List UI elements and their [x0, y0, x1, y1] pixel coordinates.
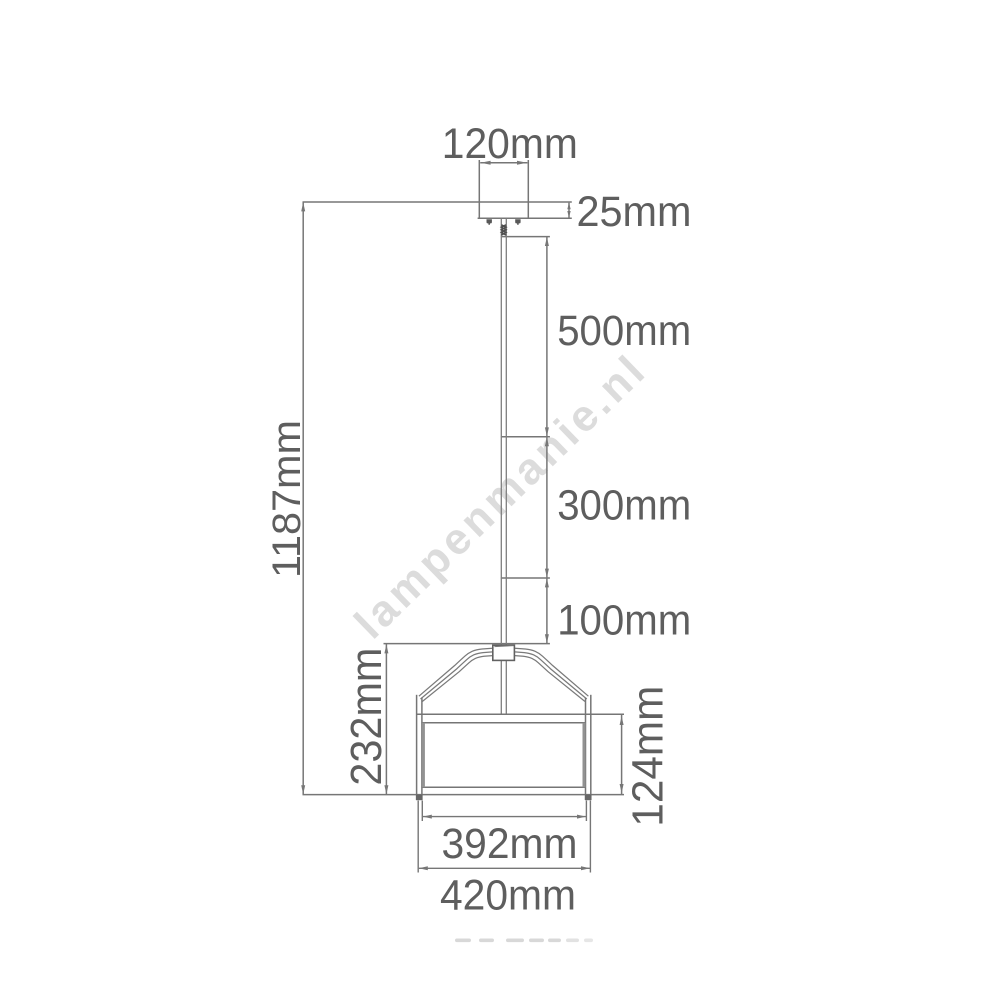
svg-text:232mm: 232mm: [342, 648, 391, 786]
svg-text:500mm: 500mm: [557, 307, 691, 355]
svg-text:1187mm: 1187mm: [265, 420, 309, 578]
svg-text:392mm: 392mm: [442, 820, 578, 868]
svg-text:120mm: 120mm: [442, 120, 578, 168]
svg-text:25mm: 25mm: [577, 188, 692, 236]
svg-text:300mm: 300mm: [557, 481, 691, 529]
svg-text:420mm: 420mm: [440, 872, 576, 920]
svg-text:124mm: 124mm: [624, 686, 673, 827]
svg-text:100mm: 100mm: [557, 596, 691, 644]
